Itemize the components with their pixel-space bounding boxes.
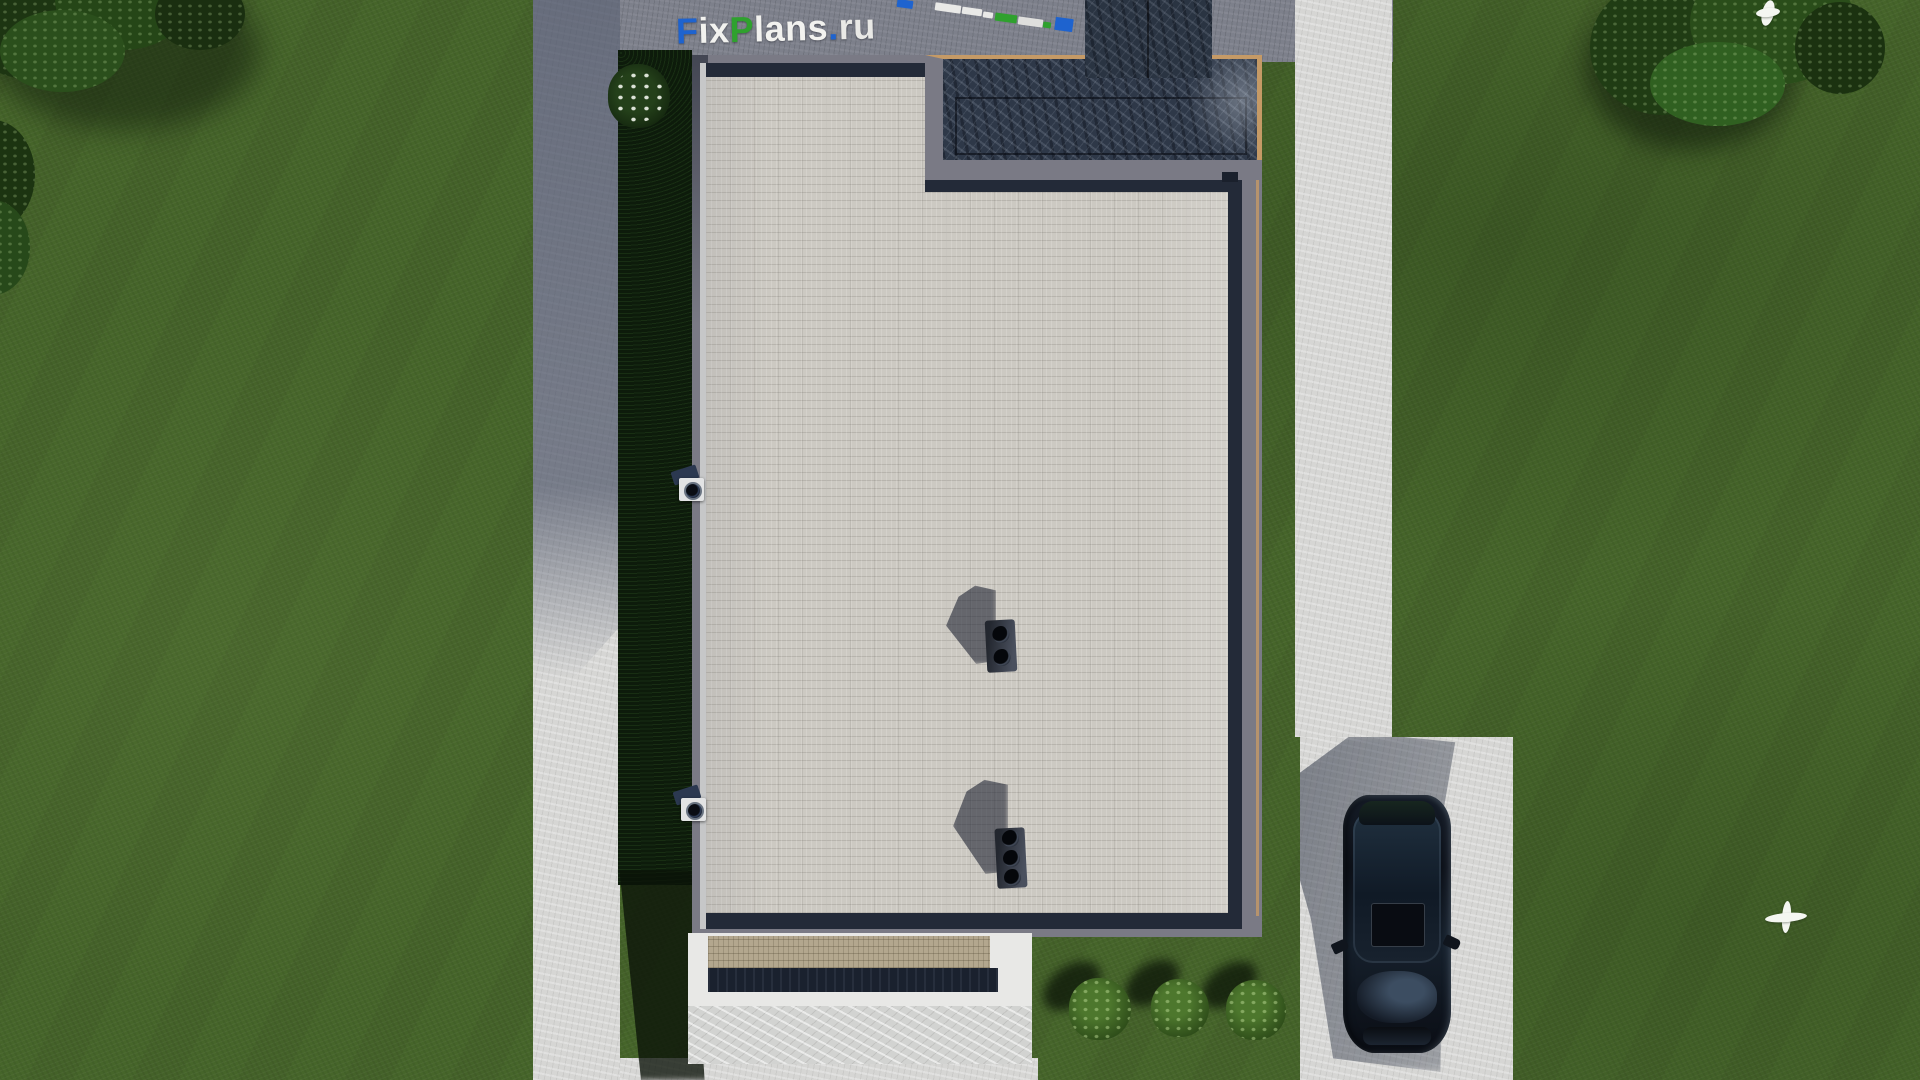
porch-recess (708, 968, 998, 992)
car-hood-reflection (1357, 971, 1437, 1023)
watermark-fragment (1043, 21, 1052, 28)
wall-camera (674, 786, 710, 826)
vent-box (985, 619, 1018, 672)
bird-wings (1765, 911, 1808, 924)
roof-vent-2port (938, 584, 1020, 676)
camera-lens-icon (684, 482, 702, 500)
east-wood-trim (1256, 78, 1259, 916)
round-bush (1151, 979, 1209, 1037)
terrace-shadow-line (925, 180, 1242, 192)
small-roof-vent (1222, 172, 1238, 182)
car-front-end (1363, 1027, 1431, 1045)
terrace-south-parapet (925, 160, 1262, 180)
building-shadow-on-path (533, 0, 620, 1080)
vent-port (991, 626, 1009, 644)
roof-vent-3port (948, 778, 1030, 888)
flowering-bush (608, 64, 670, 128)
car-rear-window (1359, 801, 1435, 825)
watermark-fragment (897, 0, 914, 9)
watermark-fragment (935, 2, 962, 14)
watermark-fragment (995, 13, 1018, 24)
watermark-fragment (983, 11, 994, 18)
watermark-fragment (1018, 16, 1044, 27)
wall-camera (672, 466, 708, 506)
vent-port (1002, 849, 1020, 867)
vent-port (1003, 868, 1021, 886)
porch-step-tiles (708, 936, 990, 968)
watermark-fragment (1054, 17, 1074, 32)
watermark-fragment (962, 7, 983, 17)
car-sunroof (1371, 903, 1425, 947)
car-mirror (1442, 934, 1461, 951)
flying-bird (1763, 896, 1809, 942)
left-walkway (533, 0, 620, 1080)
vent-box (994, 827, 1027, 888)
round-bush (1069, 978, 1131, 1040)
vent-port (1001, 830, 1019, 848)
tree-left-edge (0, 120, 50, 300)
vent-port (993, 649, 1011, 667)
white-flowers (614, 70, 664, 122)
round-bush (1226, 980, 1286, 1040)
right-walkway (1295, 0, 1392, 737)
aerial-render: FixPlans.ru (0, 0, 1920, 1080)
camera-lens-icon (686, 802, 704, 820)
watermark-fragments (0, 0, 1920, 40)
parked-car (1343, 795, 1451, 1053)
driveway (1300, 737, 1513, 1080)
entry-pavement (688, 1006, 1032, 1064)
